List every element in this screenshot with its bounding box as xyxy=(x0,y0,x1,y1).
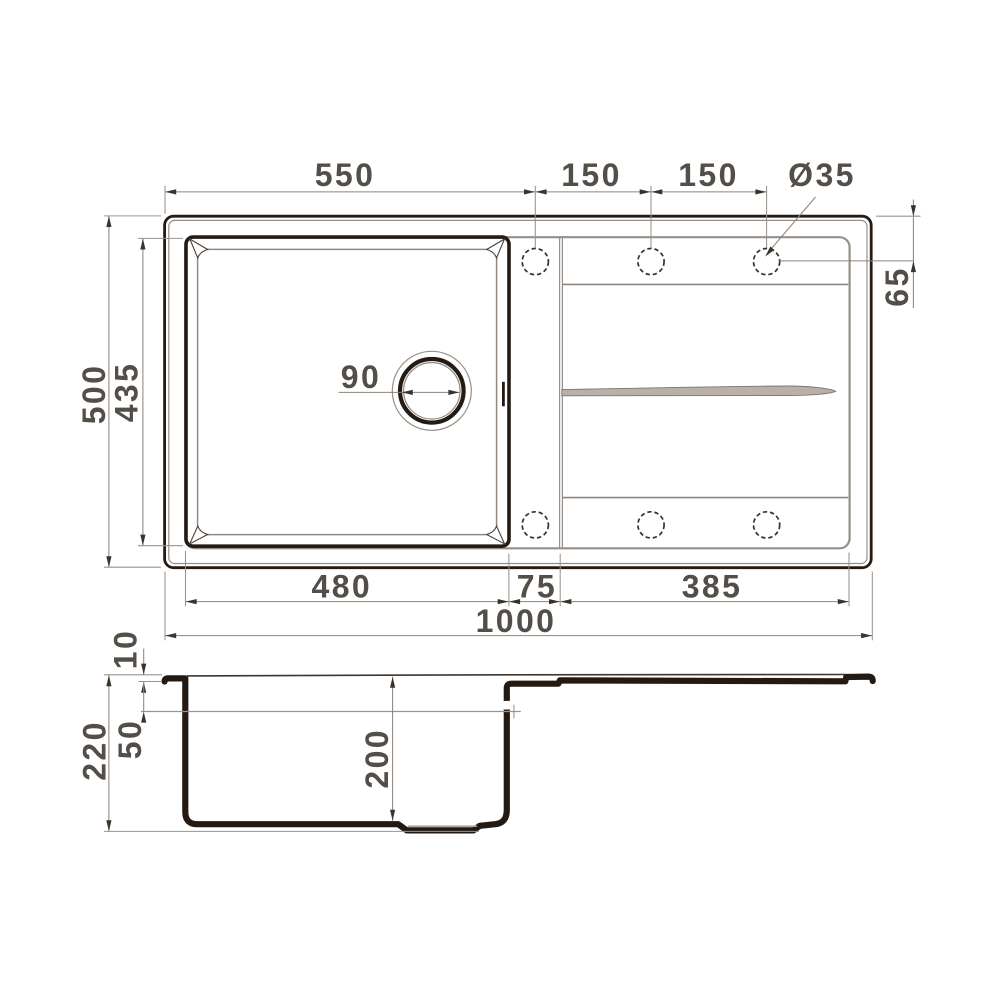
svg-text:150: 150 xyxy=(678,157,739,193)
svg-text:1000: 1000 xyxy=(476,603,557,639)
svg-text:75: 75 xyxy=(517,568,557,604)
svg-text:480: 480 xyxy=(312,568,373,604)
svg-text:Ø35: Ø35 xyxy=(788,157,856,193)
svg-text:90: 90 xyxy=(341,359,381,395)
svg-text:50: 50 xyxy=(112,719,148,759)
svg-text:435: 435 xyxy=(108,362,144,423)
svg-text:150: 150 xyxy=(561,157,622,193)
svg-text:10: 10 xyxy=(107,629,143,669)
svg-text:500: 500 xyxy=(76,364,112,425)
svg-text:200: 200 xyxy=(359,728,395,789)
svg-text:65: 65 xyxy=(879,266,915,306)
svg-text:385: 385 xyxy=(682,568,743,604)
svg-text:220: 220 xyxy=(77,720,113,781)
svg-text:550: 550 xyxy=(315,157,376,193)
